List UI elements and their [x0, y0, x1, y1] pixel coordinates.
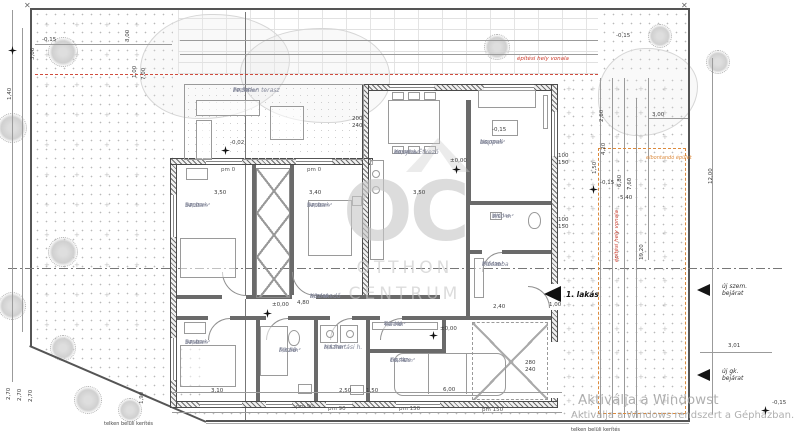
room-area: 16,74 m² — [390, 358, 415, 364]
dimension-label: 4,80 — [297, 301, 309, 307]
dimension-label: 150 — [558, 225, 569, 231]
level-marker — [589, 185, 598, 194]
dimension-label: pm 150 — [482, 408, 503, 414]
dimension-label: 1,40 — [8, 88, 14, 100]
room-label: Konyha-Étkezőlam.park.29,06 m² — [394, 150, 458, 170]
room-area: 3,90 m² — [492, 214, 514, 220]
dimension-label: 100 — [558, 218, 569, 224]
dimension-label: 3,00 — [652, 113, 664, 119]
dimension-label: 2,50 — [339, 389, 351, 395]
room-label: WCker. lap3,90 m² — [492, 214, 538, 234]
room-area: 5,62 m² — [279, 348, 301, 354]
dimension-label: 3,40 — [309, 191, 321, 197]
room-area: 5,76 m² — [310, 294, 332, 300]
room-area: 14,46 m² — [185, 340, 210, 346]
room-label: Előszobaker. lap7,26 m² — [482, 262, 540, 282]
room-label: Közlekedőker. lap5,76 m² — [310, 294, 366, 314]
dimension-label: pm 90 — [328, 407, 346, 413]
dimension-label: 240 — [352, 124, 363, 130]
room-area: 7,26 m² — [482, 262, 504, 268]
dimension-label: ±0,00 — [272, 303, 289, 309]
dimension-label: 3,50 — [413, 191, 425, 197]
dimension-label: 1,00 — [133, 66, 139, 78]
room-label: Szobalam.park.14,46 m² — [185, 340, 247, 360]
level-marker — [8, 46, 17, 55]
dimension-label: 2,60 — [600, 110, 606, 122]
dimension-label: 3,10 — [211, 389, 223, 395]
dimension-label: 3,01 — [728, 344, 740, 350]
dimension-label: 1,50 — [593, 162, 599, 174]
dimension-label: 280 — [525, 361, 536, 367]
dimension-label: 150 — [558, 161, 569, 167]
dimension-label: 2,70 — [29, 390, 35, 402]
room-label: Nappalilam.park.16,02 m² — [480, 140, 540, 160]
dimension-label: 1,90 — [140, 392, 146, 404]
dimension-label: -0,15 — [42, 38, 56, 44]
dimension-label: 19,20 — [640, 244, 646, 260]
level-marker — [263, 309, 272, 318]
level-marker — [761, 406, 770, 415]
room-label: Fürdőker. lap5,62 m² — [279, 348, 319, 368]
room-label: Szobalam.park.14,76 m² — [307, 203, 369, 223]
floor-plan-canvas: ++++++++++++++++++++++++++++++++++++++++… — [0, 0, 800, 438]
room-area: 14,76 m² — [307, 203, 332, 209]
dimension-label: 7,00 — [142, 68, 148, 80]
dimension-label: 6,00 — [443, 388, 455, 394]
room-area: 4,27 m² — [384, 322, 406, 328]
dimension-label: -0,15 — [600, 181, 614, 187]
dimension-label: -0,15 — [616, 34, 630, 40]
dimension-label: pm 150 — [399, 407, 420, 413]
dimension-label: 6,80 — [618, 175, 624, 187]
room-area: 14,35 m² — [185, 203, 210, 209]
room-label: Tárolóker. lap4,27 m² — [384, 322, 436, 342]
dimension-label: 4,20 — [602, 143, 608, 155]
dimension-label: 7,60 — [628, 178, 634, 190]
dimension-label: -0,15 — [772, 401, 786, 407]
dimension-label: 3,00 — [126, 30, 132, 42]
dimension-label: ±0,00 — [450, 159, 467, 165]
dimension-label: 1,50 — [366, 389, 378, 395]
dimension-label: 240 — [525, 368, 536, 374]
level-marker — [221, 146, 230, 155]
room-area: 5,51 m² — [324, 345, 346, 351]
dimension-label: 200 — [352, 117, 363, 123]
dimension-label: 1,00 — [549, 303, 561, 309]
dimension-label: pm 90 — [296, 405, 314, 411]
room-area: 22,50 m² — [233, 88, 258, 94]
dimension-label: 5,40 — [620, 196, 632, 202]
dimension-label: 12,00 — [709, 168, 715, 184]
label-layer: Fedetlen teraszker. lap22,50 m²Szobalam.… — [0, 0, 800, 438]
dimension-label: 2,70 — [7, 388, 13, 400]
dimension-label: 3,06 — [31, 48, 37, 60]
dimension-label: pm 0 — [221, 168, 235, 174]
room-label: Háztartási h.ker. lap5,51 m² — [324, 345, 374, 365]
dimension-label: -0,02 — [230, 141, 244, 147]
room-area: 29,06 m² — [394, 150, 419, 156]
room-label: Szobalam.park.14,35 m² — [185, 203, 247, 223]
room-label: Fedetlen teraszker. lap22,50 m² — [233, 88, 325, 108]
dimension-label: 3,50 — [214, 191, 226, 197]
dimension-label: 2,70 — [18, 389, 24, 401]
dimension-label: -0,15 — [492, 128, 506, 134]
dimension-label: pm 0 — [307, 168, 321, 174]
dimension-label: 100 — [558, 154, 569, 160]
dimension-label: 2,40 — [493, 305, 505, 311]
dimension-label: ±0,00 — [440, 327, 457, 333]
room-area: 16,02 m² — [480, 140, 505, 146]
room-label: Garázsker. lap16,74 m² — [390, 358, 442, 378]
